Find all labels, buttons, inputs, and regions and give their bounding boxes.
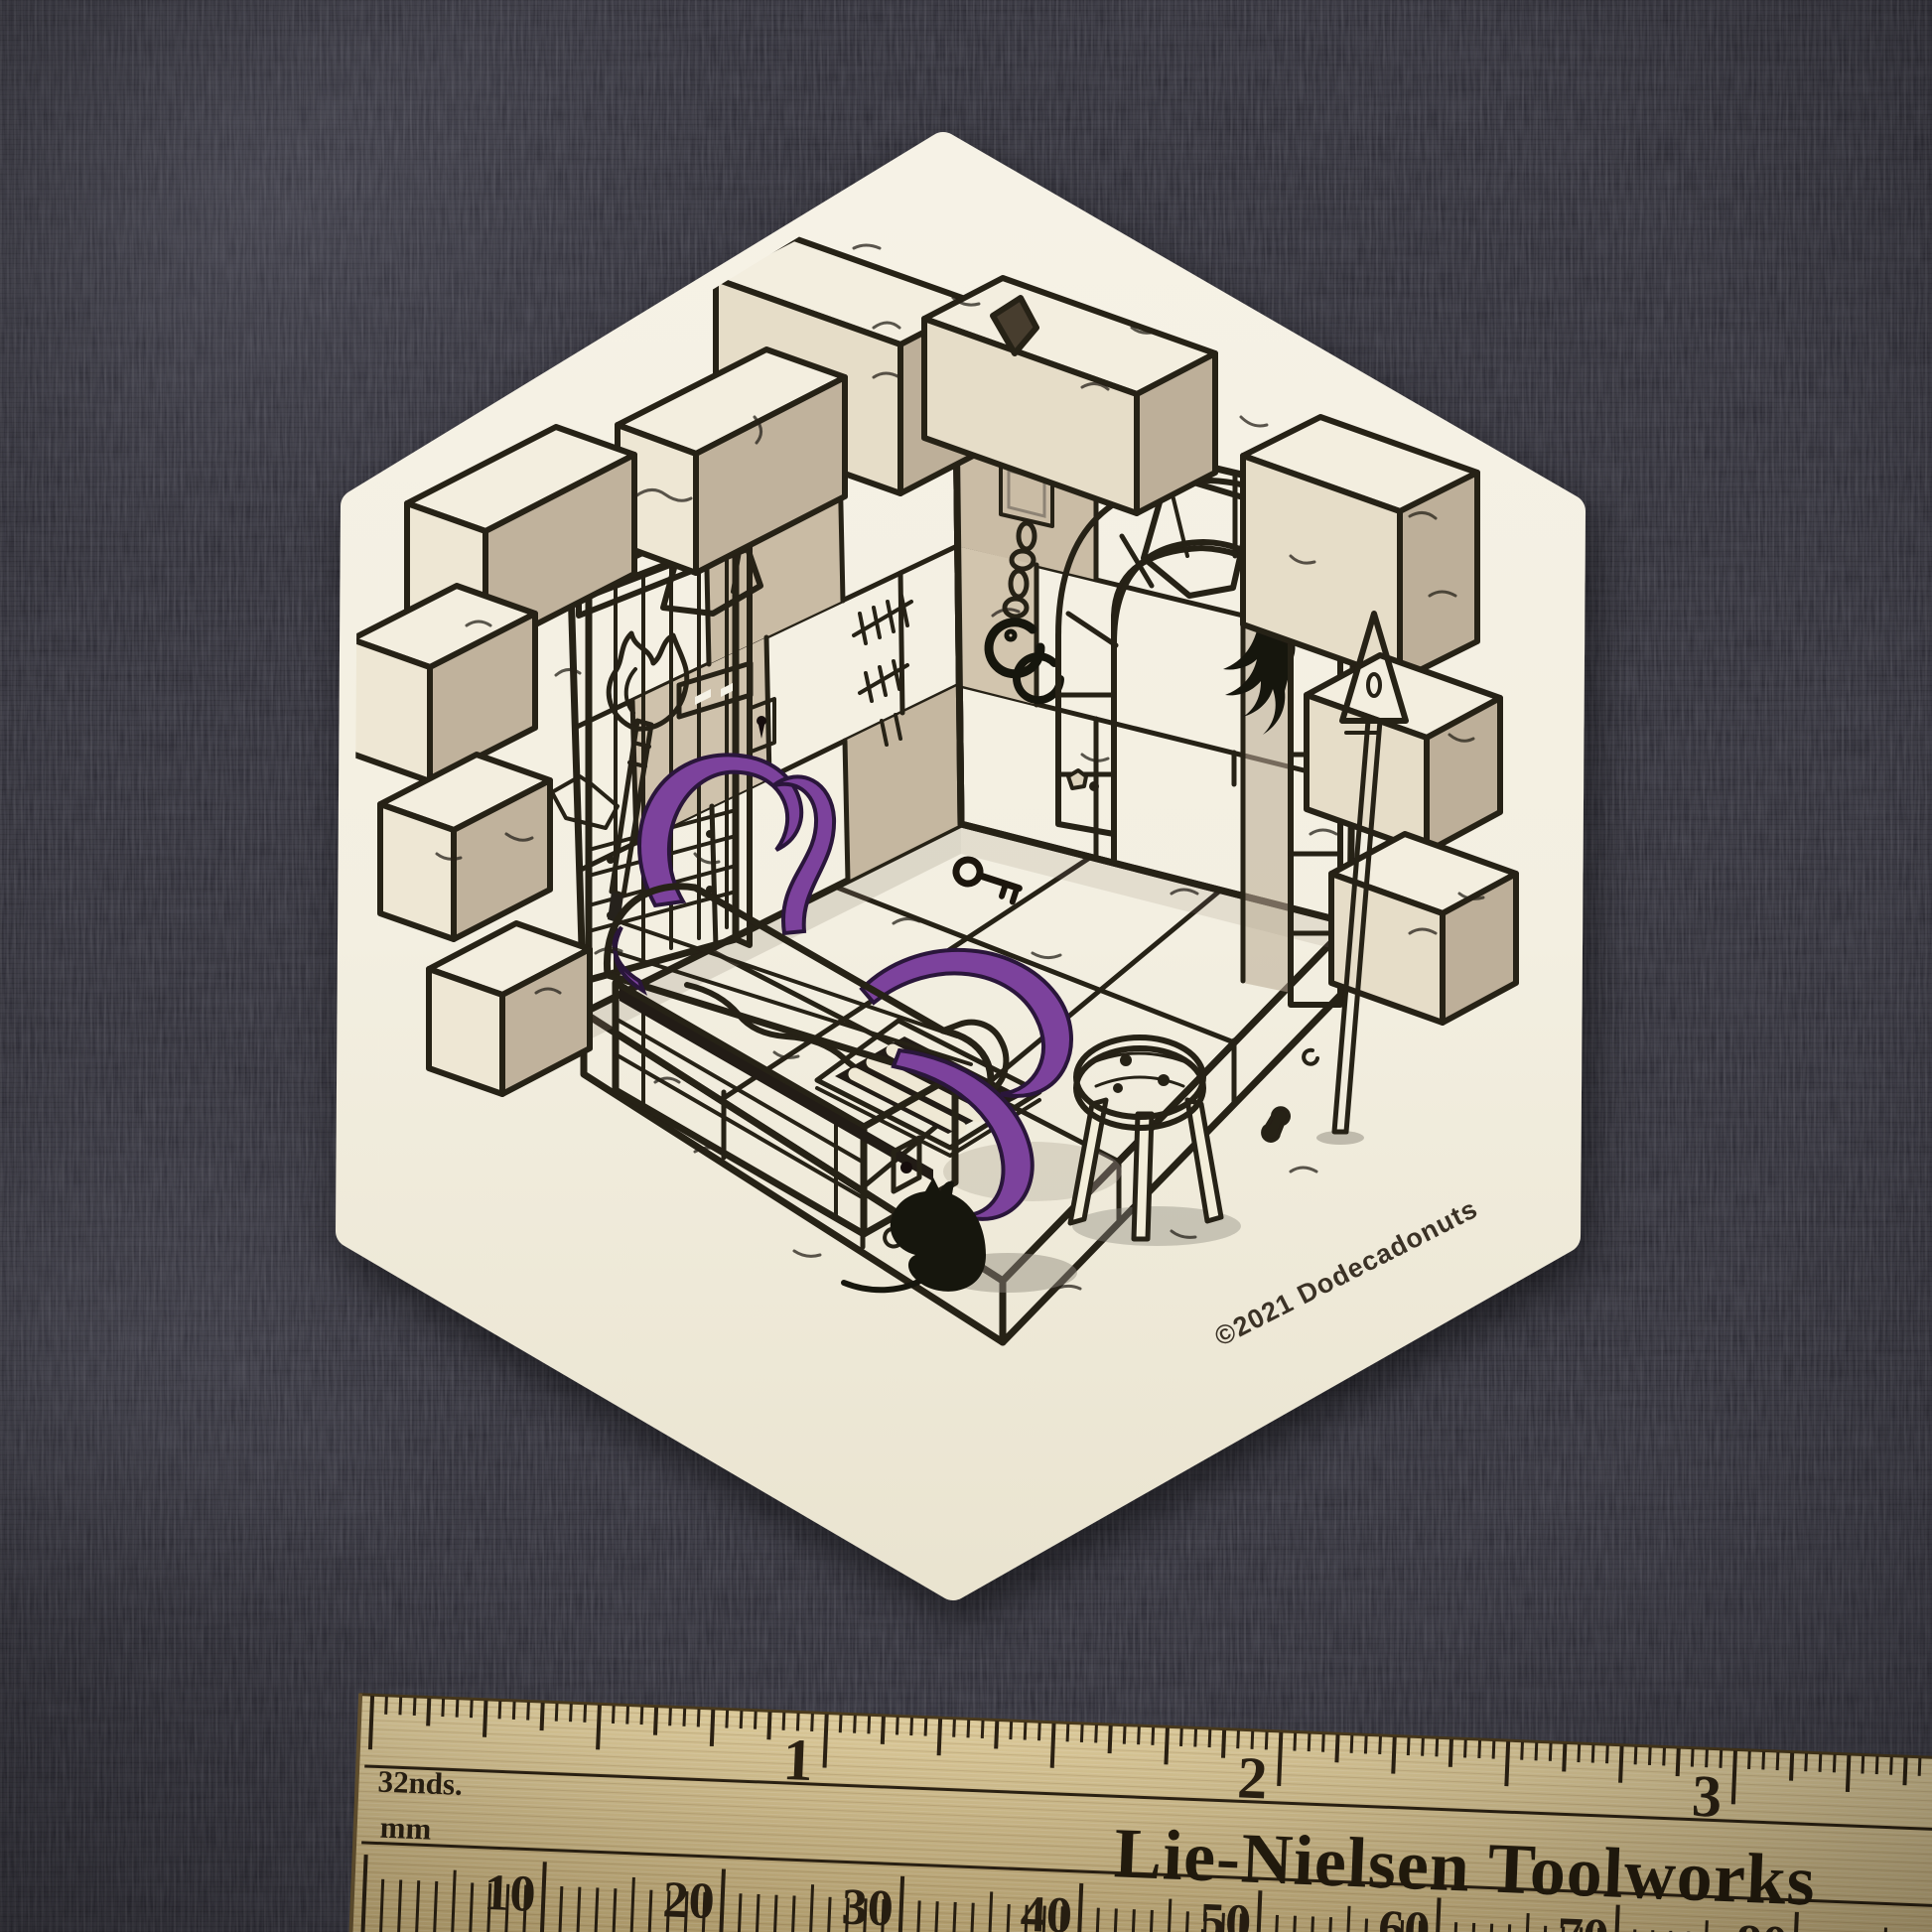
photo-scene: ©2021 Dodecadonuts 32nds. mm Lie-Nielsen… — [0, 0, 1932, 1932]
photo-vignette — [0, 0, 1932, 1932]
photo: ©2021 Dodecadonuts 32nds. mm Lie-Nielsen… — [0, 0, 1932, 1932]
